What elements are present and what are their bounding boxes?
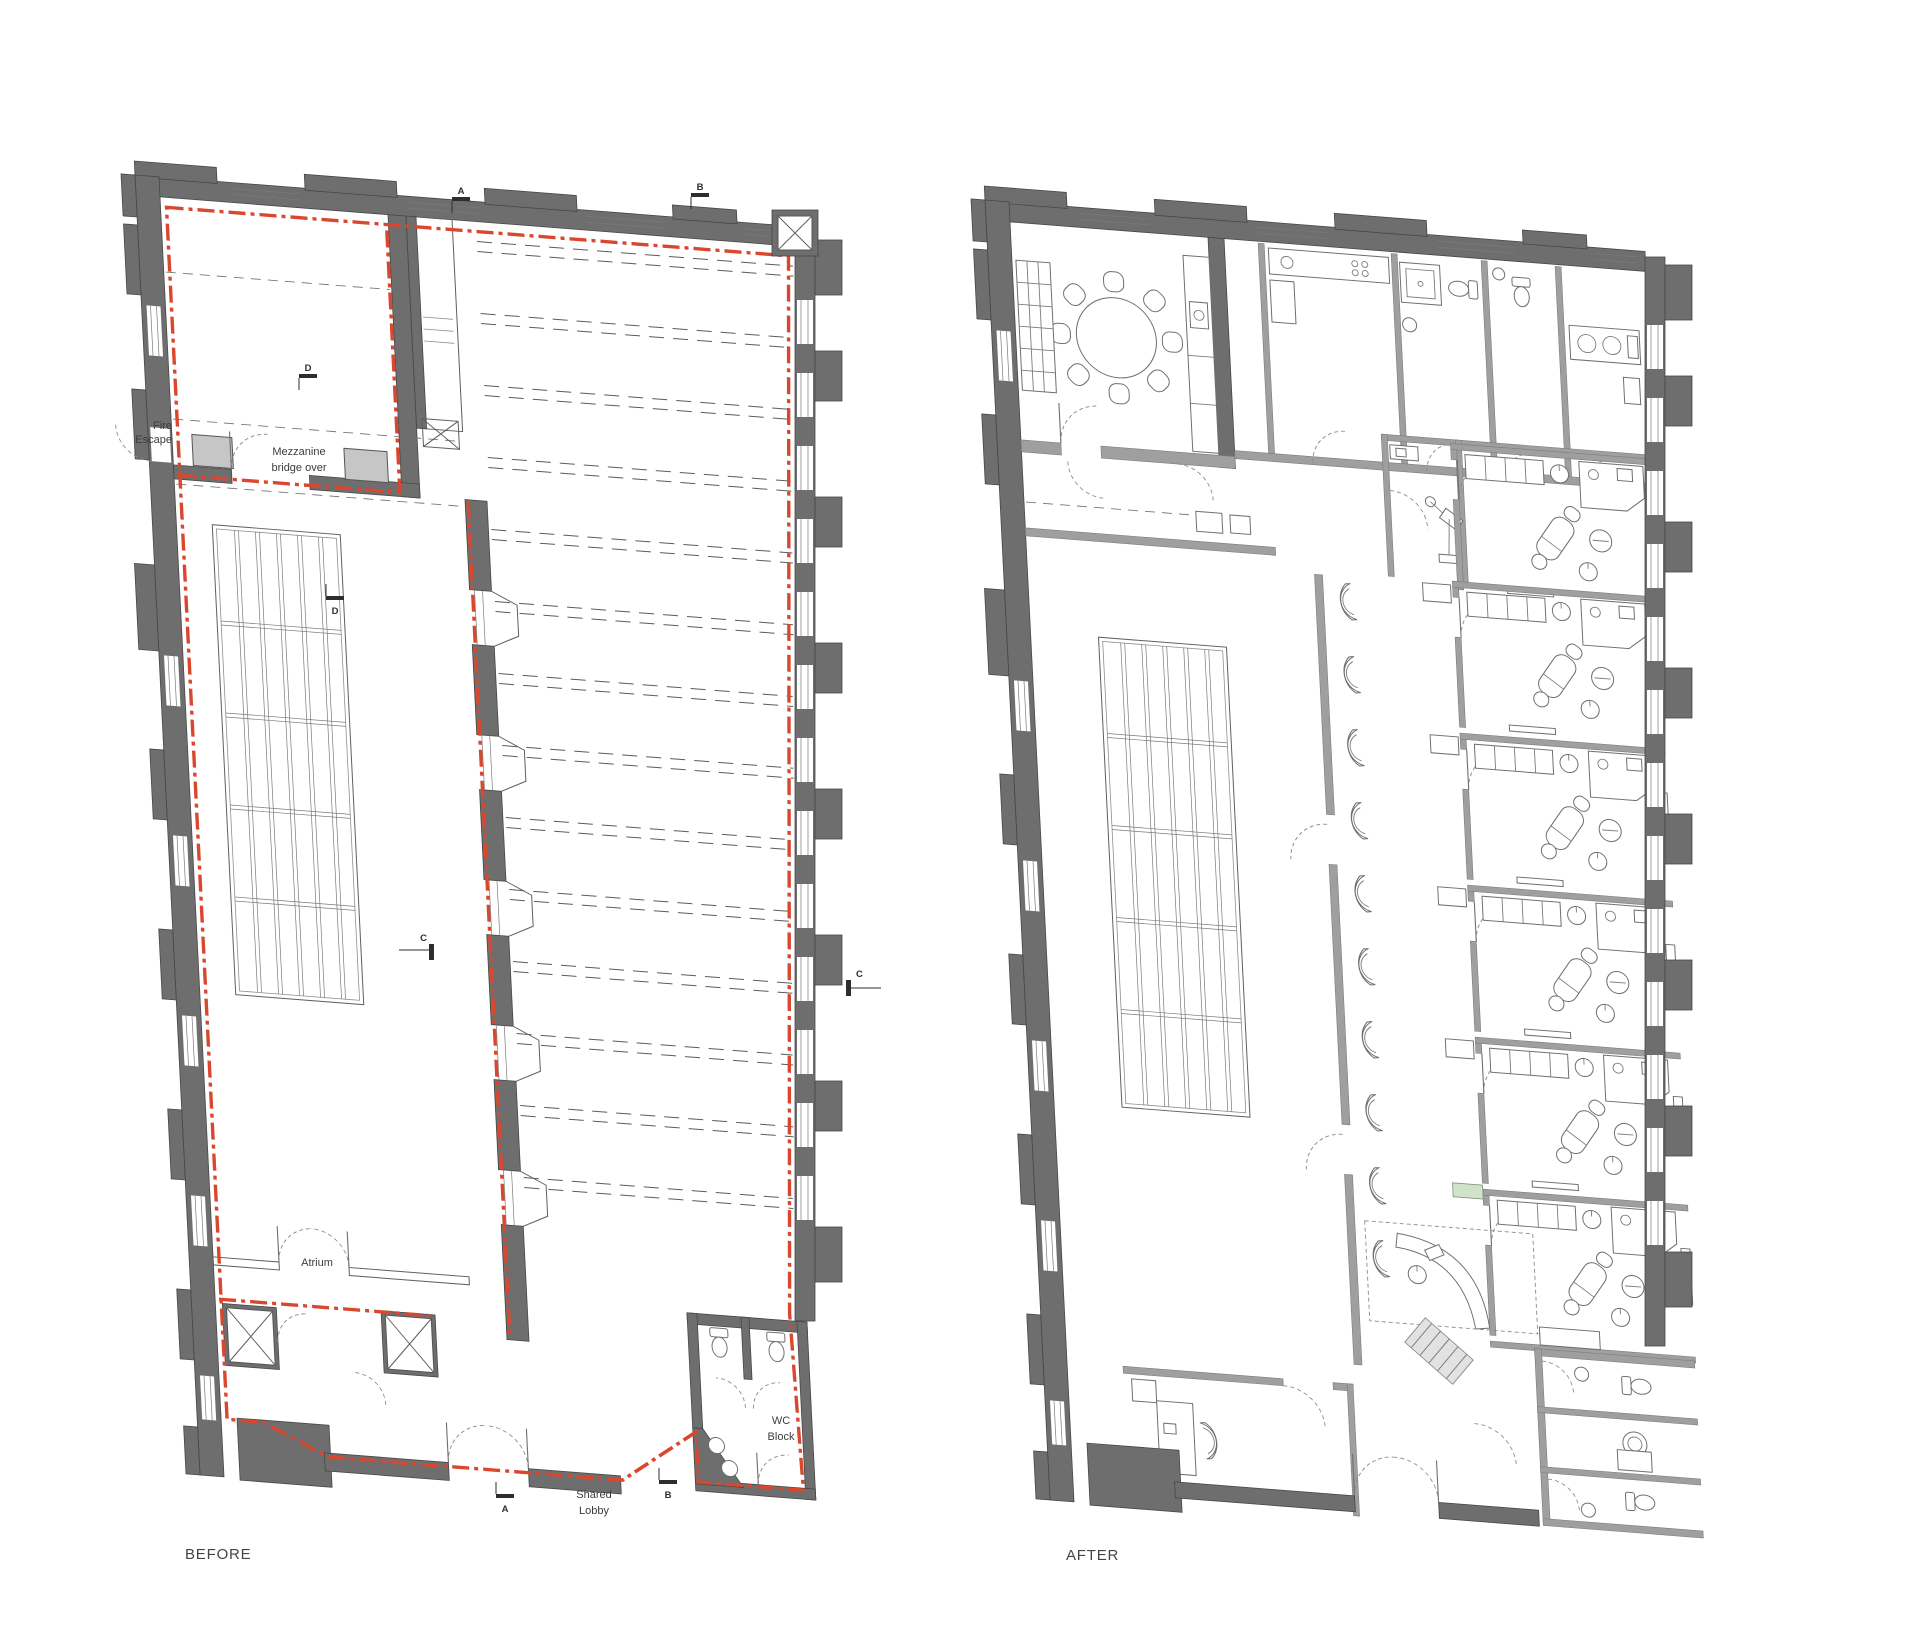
staff-kitchen [1268, 248, 1392, 331]
section-marker-a-bottom: A [496, 1482, 514, 1515]
section-marker-b-bottom: B [659, 1468, 677, 1501]
svg-text:A: A [502, 1504, 509, 1515]
before-caption: BEFORE [185, 1546, 251, 1563]
corner-shaft [772, 210, 818, 256]
before-plan: Fire Escape Mezzanine bridge over Atrium… [102, 159, 881, 1563]
atrium-doors [211, 1221, 469, 1285]
window-seat [1016, 260, 1057, 393]
bottom-doors [1085, 1393, 1541, 1540]
section-marker-d-lower: D [326, 584, 344, 617]
reception-bench [1405, 1318, 1473, 1384]
floor-plan-sheet: Fire Escape Mezzanine bridge over Atrium… [0, 0, 1920, 1634]
section-marker-c-right: C [846, 969, 881, 996]
svg-text:C: C [420, 933, 427, 944]
reception-desk [1395, 1233, 1490, 1330]
waiting-chairs [1337, 583, 1390, 1279]
mezzanine-label-line2: bridge over [271, 462, 326, 474]
svg-text:D: D [305, 363, 312, 374]
decontamination-room [1569, 325, 1643, 404]
after-caption: AFTER [1066, 1547, 1119, 1564]
svg-text:A: A [458, 186, 465, 197]
fire-escape-label-line1: Fire [153, 420, 172, 432]
atrium-label: Atrium [301, 1257, 333, 1269]
svg-text:B: B [697, 182, 704, 193]
svg-text:C: C [856, 969, 863, 980]
middle-wall [465, 500, 554, 1344]
fire-escape-label-line2: Escape [135, 434, 172, 446]
wc-block-label-line1: WC [772, 1415, 790, 1427]
wc-room-top [1492, 267, 1531, 307]
section-marker-c-left: C [399, 933, 434, 960]
section-marker-b-top: B [691, 182, 709, 209]
svg-text:B: B [665, 1490, 672, 1501]
shared-lobby-label-line1: Shared [576, 1489, 611, 1501]
section-marker-d-upper: D [299, 363, 317, 390]
round-table [1074, 295, 1158, 381]
after-plan: AFTER [964, 184, 1716, 1564]
reception [1365, 1221, 1541, 1391]
shared-lobby-label-line2: Lobby [579, 1505, 609, 1517]
svg-text:D: D [332, 606, 339, 617]
corridor-wall [1277, 571, 1363, 1365]
green-cabinet [1453, 1183, 1484, 1199]
plans-drawing: Fire Escape Mezzanine bridge over Atrium… [0, 0, 1920, 1634]
upper-corridor [1022, 452, 1276, 556]
lobby-walls [236, 1406, 622, 1510]
meeting-room [1010, 222, 1236, 469]
mezzanine-label-line1: Mezzanine [272, 446, 325, 458]
wc-block-label-line2: Block [768, 1431, 795, 1443]
shower-room [1400, 262, 1480, 337]
